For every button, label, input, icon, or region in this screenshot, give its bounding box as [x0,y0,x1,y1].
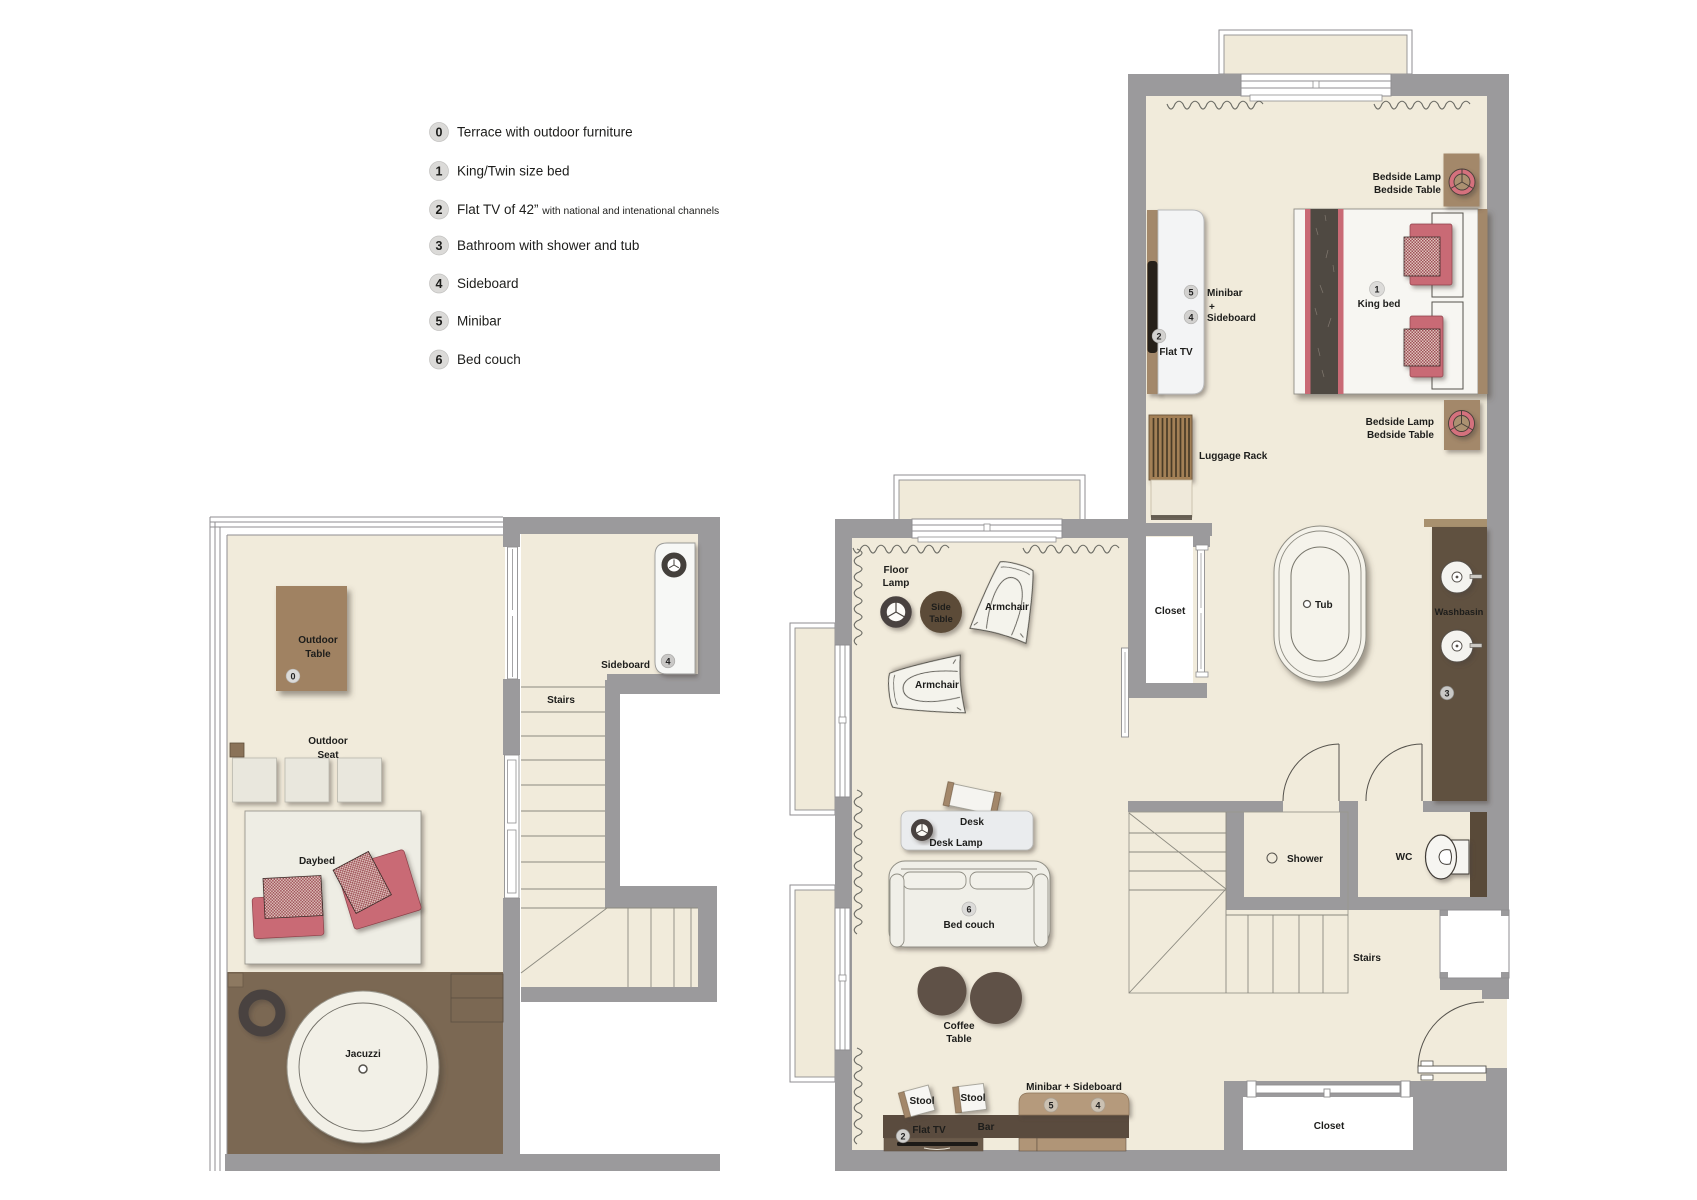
svg-text:WC: WC [1396,852,1413,863]
svg-text:Minibar: Minibar [457,314,502,329]
svg-text:4: 4 [436,277,443,291]
svg-text:Stool: Stool [910,1096,935,1107]
svg-text:Bedside Lamp: Bedside Lamp [1366,417,1434,428]
svg-text:Desk: Desk [960,817,984,828]
svg-text:Stairs: Stairs [1353,953,1381,964]
svg-text:2: 2 [1156,332,1161,342]
svg-text:5: 5 [436,315,443,329]
svg-text:Armchair: Armchair [915,680,959,691]
svg-text:King/Twin size bed: King/Twin size bed [457,164,570,179]
svg-text:Sideboard: Sideboard [1207,313,1256,324]
svg-text:Outdoor: Outdoor [298,635,338,646]
svg-text:4: 4 [1095,1101,1100,1111]
svg-text:Floor: Floor [884,565,909,576]
svg-text:Bathroom with shower and tub: Bathroom with shower and tub [457,238,639,253]
svg-text:Minibar: Minibar [1207,288,1243,299]
svg-text:Washbasin: Washbasin [1435,607,1484,617]
svg-text:Sideboard: Sideboard [601,660,650,671]
svg-text:Bedside Lamp: Bedside Lamp [1373,172,1441,183]
svg-text:Minibar + Sideboard: Minibar + Sideboard [1026,1082,1122,1093]
svg-text:Seat: Seat [317,750,339,761]
svg-text:6: 6 [436,353,443,367]
svg-text:Bedside Table: Bedside Table [1367,430,1434,441]
svg-text:Tub: Tub [1315,600,1333,611]
svg-text:1: 1 [436,165,443,179]
svg-text:Outdoor: Outdoor [308,736,348,747]
svg-text:Sideboard: Sideboard [457,276,519,291]
svg-text:Coffee: Coffee [943,1021,975,1032]
svg-text:King bed: King bed [1358,299,1401,310]
svg-text:6: 6 [966,905,971,915]
svg-text:Closet: Closet [1155,606,1186,617]
svg-text:Closet: Closet [1314,1121,1345,1132]
svg-text:0: 0 [290,672,295,682]
svg-text:3: 3 [1444,689,1449,699]
svg-text:Stool: Stool [961,1093,986,1104]
svg-text:Bar: Bar [978,1122,995,1133]
svg-text:Bed couch: Bed couch [943,920,994,931]
svg-text:Stairs: Stairs [547,695,575,706]
svg-text:2: 2 [900,1132,905,1142]
svg-text:Bed couch: Bed couch [457,352,521,367]
svg-text:Jacuzzi: Jacuzzi [345,1049,381,1060]
svg-text:Table: Table [946,1034,972,1045]
svg-text:Shower: Shower [1287,854,1323,865]
svg-text:0: 0 [436,126,443,140]
svg-text:2: 2 [436,203,443,217]
svg-text:Flat TV: Flat TV [1159,347,1193,358]
svg-text:+: + [1209,302,1215,313]
svg-text:4: 4 [1188,313,1193,323]
svg-text:Flat TV: Flat TV [912,1125,946,1136]
svg-text:1: 1 [1374,285,1379,295]
svg-text:Desk Lamp: Desk Lamp [929,838,982,849]
svg-text:Armchair: Armchair [985,602,1029,613]
svg-text:Terrace with outdoor furniture: Terrace with outdoor furniture [457,125,633,140]
svg-text:4: 4 [665,657,670,667]
svg-text:Table: Table [305,649,331,660]
svg-text:5: 5 [1188,288,1193,298]
svg-text:Table: Table [929,614,953,624]
svg-text:Bedside Table: Bedside Table [1374,185,1441,196]
svg-text:Side: Side [931,602,951,612]
svg-text:Daybed: Daybed [299,856,335,867]
svg-text:Luggage Rack: Luggage Rack [1199,451,1268,462]
svg-text:3: 3 [436,239,443,253]
svg-text:Lamp: Lamp [883,578,910,589]
svg-text:5: 5 [1048,1101,1053,1111]
